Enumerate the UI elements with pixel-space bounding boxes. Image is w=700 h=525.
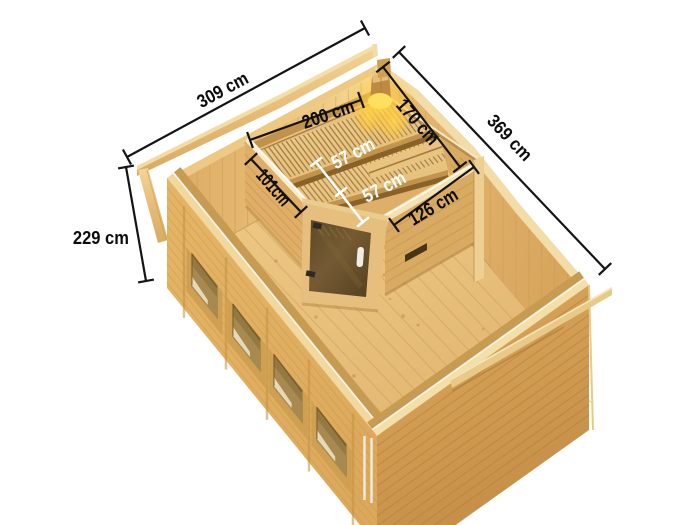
svg-text:229 cm: 229 cm <box>73 227 129 248</box>
